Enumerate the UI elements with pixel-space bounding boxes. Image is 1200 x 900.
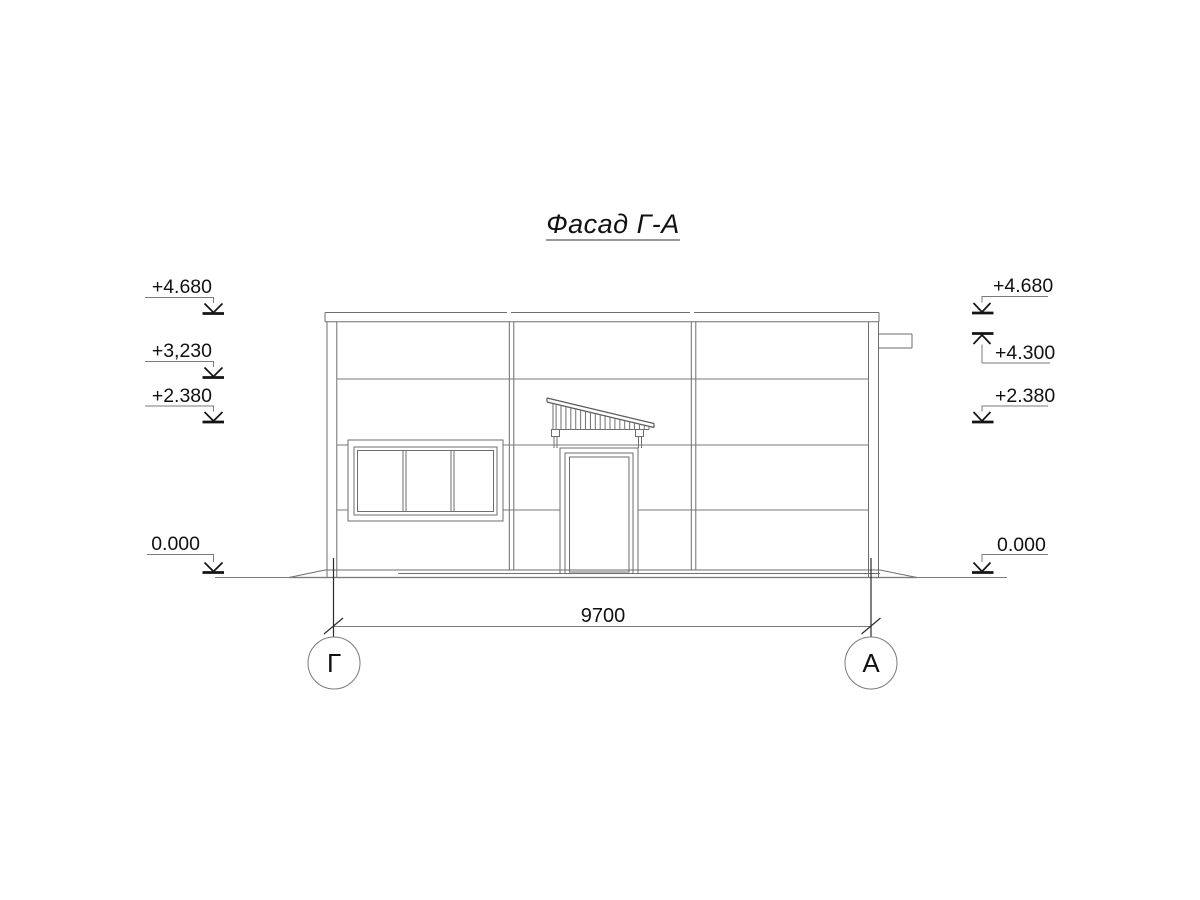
elevation-arrow-down-icon (203, 563, 225, 573)
parapet-band (325, 313, 879, 322)
drawing-title: Фасад Г-А (546, 209, 680, 240)
base-plinth (289, 570, 917, 578)
facade-drawing: Фасад Г-А (0, 0, 1200, 900)
window-frame-outer (354, 447, 497, 515)
window-opening (348, 440, 503, 521)
elevation-mark-zero-right: 0.000 (972, 534, 1048, 573)
window-mullions (403, 451, 454, 512)
elevation-marks-left: +4.680 +3,230 +2.380 (145, 276, 224, 573)
dimension: 9700 (324, 605, 881, 634)
elevation-marks-right: +4.680 +4.300 +2.380 (972, 275, 1055, 573)
axis-label: А (862, 648, 880, 678)
elevation-mark-zero-left: 0.000 (147, 533, 224, 573)
facade-drawing-sheet: Фасад Г-А (0, 0, 1200, 900)
door-leaf (570, 457, 630, 572)
elevation-mark-lintel-right: +2.380 (972, 385, 1055, 422)
elevation-value: 0.000 (997, 534, 1046, 556)
elevation-value: +4.680 (152, 276, 212, 298)
elevation-value: +4.300 (995, 342, 1055, 364)
roof-drain-outlet (879, 334, 913, 348)
elevation-arrow-down-icon (972, 303, 994, 313)
elevation-arrow-down-icon (203, 304, 225, 314)
elevation-arrow-down-icon (203, 412, 225, 422)
door-opening (560, 448, 638, 574)
drawing-title-text: Фасад Г-А (546, 209, 680, 239)
entrance-canopy (547, 398, 654, 448)
elevation-mark-canopy-right: +4.300 (972, 334, 1055, 365)
dimension-value: 9700 (581, 605, 626, 627)
panel-joint-lines (337, 379, 869, 510)
elevation-value: +3,230 (152, 340, 212, 362)
elevation-arrow-down-icon (972, 412, 994, 422)
elevation-arrow-down-icon (972, 563, 994, 573)
canopy-hatch (553, 403, 649, 429)
window-frame-inner (358, 451, 494, 512)
elevation-value: +2.380 (995, 385, 1055, 407)
walls (327, 322, 879, 577)
elevation-mark-lintel-left: +2.380 (145, 385, 224, 422)
elevation-mark-parapet-right: +4.680 (972, 275, 1053, 313)
elevation-value: +4.680 (993, 275, 1053, 297)
elevation-mark-beam-left: +3,230 (145, 340, 224, 378)
door-frame (565, 453, 633, 574)
elevation-arrow-down-icon (203, 368, 225, 378)
facade-columns (509, 322, 696, 570)
elevation-arrow-up-icon (972, 334, 994, 345)
axis-label: Г (327, 648, 341, 678)
elevation-mark-parapet-left: +4.680 (145, 276, 224, 314)
elevation-value: +2.380 (152, 385, 212, 407)
window (348, 440, 503, 521)
building-facade (215, 313, 1007, 578)
door (560, 448, 638, 574)
elevation-value: 0.000 (151, 533, 200, 555)
